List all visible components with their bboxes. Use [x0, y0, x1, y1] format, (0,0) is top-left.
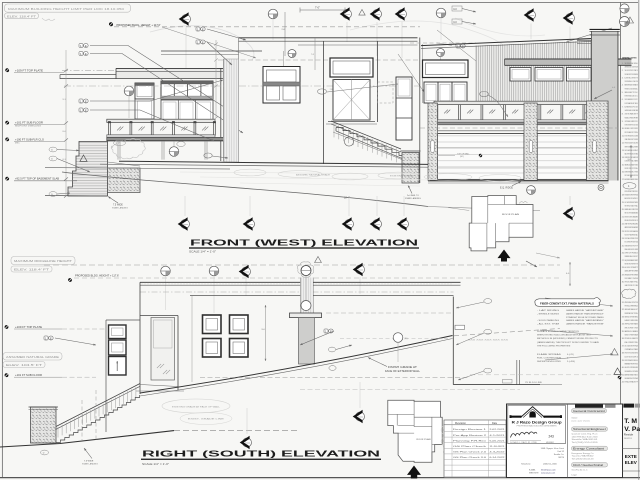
- svg-text:THE JOB SITE PRIOR TO START OF: THE JOB SITE PRIOR TO START OF: [625, 69, 639, 72]
- svg-text:STAIR RISE 7-3/4 IN MAX RUN: STAIR RISE 7-3/4 IN MAX RUN: [625, 156, 639, 159]
- svg-text:E.Q. RIDGE: E.Q. RIDGE: [500, 187, 513, 190]
- svg-text:Tacoma WA 98402: Tacoma WA 98402: [572, 455, 594, 458]
- svg-text:JAMES HARDIE "HARDIEPANEL": JAMES HARDIE "HARDIEPANEL": [566, 319, 604, 322]
- svg-text:ALL HEADERS 4x8 DF NO 2 UNO: ALL HEADERS 4x8 DF NO 2 UNO: [625, 105, 638, 108]
- svg-text:REQUIRE SEPARATE PERMIT: REQUIRE SEPARATE PERMIT: [625, 259, 639, 262]
- svg-text:WORK AND REPORT DISCREPANCIES: WORK AND REPORT DISCREPANCIES: [625, 73, 639, 76]
- svg-text:(96'): (96'): [460, 156, 464, 158]
- svg-text:HANDRAIL 34-38 IN ABV NOSING: HANDRAIL 34-38 IN ABV NOSING: [625, 163, 638, 166]
- svg-text:DECK GUARDRAIL 36 IN MIN HT: DECK GUARDRAIL 36 IN MIN HT: [625, 149, 639, 152]
- svg-text:SCALE 1/4" = 1'-0": SCALE 1/4" = 1'-0": [189, 249, 216, 253]
- svg-text:Civil / Geotechnical: Civil / Geotechnical: [573, 464, 604, 467]
- svg-text:Legal: Legal: [572, 474, 577, 476]
- svg-text:ALL SOILS CRITERIA TYP: ALL SOILS CRITERIA TYP: [625, 266, 639, 269]
- svg-text:STAIR LANDING: STAIR LANDING: [82, 463, 98, 466]
- svg-text:SCALE 1/4" = 1'-0": SCALE 1/4" = 1'-0": [142, 462, 169, 466]
- svg-text:GeoPacific LLC: GeoPacific LLC: [572, 469, 589, 471]
- svg-text:RETAINING WALLS OVER 4 FT: RETAINING WALLS OVER 4 FT: [625, 255, 639, 258]
- svg-text:PROVIDE SOLID BLOCKING AT ALL: PROVIDE SOLID BLOCKING AT ALL: [625, 87, 638, 90]
- svg-text:ROOF SHEATHING 1/2 CDX PLY: ROOF SHEATHING 1/2 CDX PLY: [625, 98, 639, 101]
- svg-text:STRAIGHT EDGE NOTCHED PANEL: STRAIGHT EDGE NOTCHED PANEL: [566, 316, 605, 319]
- svg-text:Telephone: Telephone: [521, 464, 531, 466]
- svg-text:VERIFY ALL FINISH GRADES: VERIFY ALL FINISH GRADES: [625, 323, 639, 326]
- svg-text:Unit 32: Unit 32: [557, 450, 564, 453]
- svg-text:FOR ALL SETBACKS TYP: FOR ALL SETBACKS TYP: [625, 381, 639, 384]
- svg-text:(206) 8-1-0400: (206) 8-1-0400: [543, 464, 558, 466]
- svg-text:Pre-App Review 2: Pre-App Review 2: [453, 434, 487, 437]
- svg-text:WEEP SCREED AT ALL VENEER: WEEP SCREED AT ALL VENEER: [625, 145, 639, 148]
- svg-text:Revision: Revision: [455, 422, 467, 425]
- svg-text:SEE STRUCTURAL FOR ALL: SEE STRUCTURAL FOR ALL: [625, 204, 638, 207]
- svg-text:ALL EXT DECKS SLOPE 1/4: ALL EXT DECKS SLOPE 1/4: [625, 355, 638, 358]
- svg-text:+109 FT TOP PLATE: +109 FT TOP PLATE: [15, 70, 44, 73]
- svg-text:DIMENSIONS AND CONDITIONS AT: DIMENSIONS AND CONDITIONS AT: [625, 66, 639, 69]
- svg-text:KICKOUT FLASHING AT ALL: KICKOUT FLASHING AT ALL: [625, 233, 638, 236]
- svg-text:WATER RESISTIVE BARRIER: WATER RESISTIVE BARRIER: [625, 226, 639, 229]
- svg-text:SMOKE AND CO DETECTORS PER: SMOKE AND CO DETECTORS PER: [625, 127, 639, 130]
- svg-text:NET CLEAR OPENING PER R310: NET CLEAR OPENING PER R310: [625, 174, 638, 177]
- svg-text:EXTE: EXTE: [625, 454, 637, 459]
- svg-text:7'-0": 7'-0": [315, 6, 320, 9]
- svg-text:PROFESSIONAL BUILDING DESIGN: PROFESSIONAL BUILDING DESIGNERS: [517, 425, 558, 428]
- svg-text:- ALL EXT. TRIM: - ALL EXT. TRIM: [537, 323, 559, 326]
- svg-text:E: E: [202, 27, 204, 31]
- svg-text:ROOF PLAN: ROOF PLAN: [502, 213, 520, 216]
- svg-text:FLAME SPREAD: FLAME SPREAD: [537, 353, 562, 356]
- svg-text:+101 FT SUB FLOOR: +101 FT SUB FLOOR: [15, 375, 42, 377]
- svg-text:CRAWL SPACE VENT 1/150 MIN: CRAWL SPACE VENT 1/150 MIN: [625, 138, 639, 141]
- svg-text:ROOF DRAINS TO TIGHTLINE: ROOF DRAINS TO TIGHTLINE: [625, 277, 639, 280]
- svg-text:(JAMES HARDIE). THE PRODUCT IS: (JAMES HARDIE). THE PRODUCT IS RECOGNIZE…: [537, 341, 600, 344]
- svg-text:E: E: [85, 52, 87, 56]
- svg-text:ELEV: ELEV: [625, 460, 638, 465]
- svg-text:PANEL EDGES TYP U.N.O.: PANEL EDGES TYP U.N.O.: [625, 91, 638, 94]
- svg-text:RIGHT (SOUTH) ELEVATION: RIGHT (SOUTH) ELEVATION: [142, 450, 380, 459]
- svg-text:EXISTING GRADE AT FACE OF WALL: EXISTING GRADE AT FACE OF WALL: [172, 405, 221, 408]
- svg-text:FIBER-CEMENT EXT. FINISH MATER: FIBER-CEMENT EXT. FINISH MATERIALS: [540, 301, 594, 305]
- svg-text:IN PER FT AWAY FROM BLDG: IN PER FT AWAY FROM BLDG: [625, 359, 639, 362]
- svg-text:- SHINGLE SIDING: - SHINGLE SIDING: [537, 313, 559, 315]
- svg-text:E: E: [462, 44, 464, 48]
- svg-text:MIDPOINT DWELLING: MIDPOINT DWELLING: [15, 126, 41, 128]
- svg-text:GS Plan Check: GS Plan Check: [453, 446, 488, 448]
- svg-text:TOP OF WALL: TOP OF WALL: [457, 153, 470, 156]
- svg-text:1420 Fifth Ave Suite 2200: 1420 Fifth Ave Suite 2200: [572, 435, 598, 438]
- svg-text:WITH CIVIL PRIOR TO POUR: WITH CIVIL PRIOR TO POUR: [625, 327, 639, 329]
- svg-text:7.5 WIDE: 7.5 WIDE: [113, 205, 123, 207]
- svg-text:2X BLDG LINE: 2X BLDG LINE: [525, 382, 543, 384]
- svg-text:SILL PLATES PRESSURE TREATED: SILL PLATES PRESSURE TREATED: [625, 201, 639, 204]
- svg-text:Date: Date: [492, 422, 498, 425]
- svg-text:Design Review 1: Design Review 1: [453, 429, 488, 431]
- svg-text:GS Plan Check 2.0: GS Plan Check 2.0: [453, 452, 487, 454]
- svg-text:ADDRESS NUMBERS VISIBLE: ADDRESS NUMBERS VISIBLE: [625, 178, 639, 181]
- svg-text:GUTTERS AND DOWNSPOUTS TO: GUTTERS AND DOWNSPOUTS TO: [625, 120, 638, 123]
- svg-text:98274: 98274: [558, 457, 565, 459]
- svg-text:PER CIVIL PLANS TYPICAL: PER CIVIL PLANS TYPICAL: [625, 281, 638, 284]
- svg-text:PROPOSED BLDG. HEIGHT + 117.6': PROPOSED BLDG. HEIGHT + 117.6': [75, 275, 120, 278]
- svg-text:FUEL CONTRIBUTION: FUEL CONTRIBUTION: [537, 358, 562, 360]
- svg-text:ROOF WALL INTERSECTIONS: ROOF WALL INTERSECTIONS: [625, 237, 639, 240]
- svg-text:EXT LIGHTING PER ELEC PLAN: EXT LIGHTING PER ELEC PLAN: [625, 241, 639, 244]
- svg-text:0 (<25): 0 (<25): [567, 353, 574, 356]
- svg-text:+100 FT SUB-FLR CLG: +100 FT SUB-FLR CLG: [15, 139, 44, 141]
- svg-text:Evergreen Energy Co: Evergreen Energy Co: [572, 453, 594, 455]
- svg-text:Structural Engineer: Structural Engineer: [573, 428, 606, 431]
- svg-text:Info@rjrazo.com: Info@rjrazo.com: [541, 470, 556, 472]
- svg-text:ASSUMED NATURAL GRADE: ASSUMED NATURAL GRADE: [6, 356, 60, 359]
- svg-text:JAMES HARDIE "HARDIETRIM": JAMES HARDIE "HARDIETRIM": [566, 323, 604, 326]
- svg-text:JAMES HARDIE "HARDIEPLANK": JAMES HARDIE "HARDIEPLANK": [566, 309, 604, 312]
- svg-text:ATTIC VENTILATION 1/150 MIN: ATTIC VENTILATION 1/150 MIN: [625, 134, 639, 137]
- svg-text:XXX XXX XXX XXX XXX: XXX XXX XXX XXX XXX: [468, 340, 509, 342]
- svg-text:GUARD POSTS AT 4 FT OC MAX: GUARD POSTS AT 4 FT OC MAX: [625, 284, 639, 287]
- svg-text:MAXIMUM BUILDING HEIGHT LIMIT: MAXIMUM BUILDING HEIGHT LIMIT PER LMC 18…: [8, 8, 125, 11]
- svg-text:PAINT ALL EXPOSED METAL: PAINT ALL EXPOSED METAL: [625, 315, 638, 318]
- svg-text:AMENDMENTS AND ORDINANCES: AMENDMENTS AND ORDINANCES: [625, 84, 639, 87]
- svg-text:WHEN TESTED IN ACCORDANCE WITH: WHEN TESTED IN ACCORDANCE WITH ASTM TEST: [537, 334, 592, 337]
- svg-text:(see cover sheet): (see cover sheet): [572, 419, 591, 422]
- svg-text:E: E: [85, 44, 87, 48]
- svg-text:Tel (253) 555-0123: Tel (253) 555-0123: [572, 458, 594, 460]
- svg-text:THE CONTRACTOR SHALL VERIFY AL: THE CONTRACTOR SHALL VERIFY ALL: [625, 62, 638, 65]
- svg-text:FLOOR SHEATHING 3/4 T AND G: FLOOR SHEATHING 3/4 T AND G: [625, 102, 638, 105]
- svg-text:E: E: [85, 108, 87, 112]
- svg-text:PROVIDE 22x30 ATTIC ACCESS: PROVIDE 22x30 ATTIC ACCESS: [625, 142, 639, 145]
- svg-text:SEE GEOTECH REPORT FOR: SEE GEOTECH REPORT FOR: [625, 263, 639, 265]
- svg-text:243: 243: [549, 435, 555, 439]
- svg-text:PRIOR TO ROUGH-IN WORK: PRIOR TO ROUGH-IN WORK: [625, 353, 639, 355]
- svg-text:7.5 WIDE: 7.5 WIDE: [84, 460, 94, 462]
- svg-text:SEE SHEET A-2 SITE PLAN: SEE SHEET A-2 SITE PLAN: [625, 377, 639, 380]
- svg-text:DS LOCATIONS PER PLAN: DS LOCATIONS PER PLAN: [625, 344, 639, 347]
- svg-text:GLAZING SHALL BE DUAL PANE: GLAZING SHALL BE DUAL PANE: [625, 109, 639, 112]
- svg-text:PROVIDE GG CLEANOUTS: PROVIDE GG CLEANOUTS: [625, 337, 639, 340]
- svg-text:6-14-2022: 6-14-2022: [490, 457, 506, 459]
- svg-text:STORM SYSTEM PER CIVIL DWGS: STORM SYSTEM PER CIVIL DWGS: [625, 125, 639, 127]
- svg-text:Planning P.R.Rev: Planning P.R.Rev: [453, 440, 488, 442]
- svg-text:FLASHING TO MATCH SIDING: FLASHING TO MATCH SIDING: [625, 319, 639, 322]
- svg-text:Quantum Const. Eng. PLLC: Quantum Const. Eng. PLLC: [572, 433, 599, 436]
- svg-text:BALUSTER SPACING 4 IN MAX: BALUSTER SPACING 4 IN MAX: [625, 153, 639, 156]
- svg-text:PROPOSED BLDG. HEIGHT + 117.6': PROPOSED BLDG. HEIGHT + 117.6': [117, 23, 162, 27]
- svg-text:SEE CIVIL FOR DRAINAGE AND: SEE CIVIL FOR DRAINAGE AND: [625, 212, 639, 215]
- svg-text:14022 8: 14022 8: [624, 438, 633, 440]
- svg-text:E: E: [202, 40, 204, 44]
- svg-text:PER IRC R311.7.8 TYPICAL: PER IRC R311.7.8 TYPICAL: [625, 167, 638, 170]
- svg-text:MAINTAIN 6 IN CLEARANCE: MAINTAIN 6 IN CLEARANCE: [625, 330, 639, 333]
- svg-text:JAMES HARDIE "HARDIESHINGLE": JAMES HARDIE "HARDIESHINGLE": [566, 312, 604, 315]
- svg-text:DONALD L. RAZO JR. CPBD: DONALD L. RAZO JR. CPBD: [510, 441, 538, 444]
- svg-text:+101 FT SUB FLOOR: +101 FT SUB FLOOR: [15, 122, 43, 124]
- svg-text:2018 IRC AND ALL LOCAL CODE: 2018 IRC AND ALL LOCAL CODE: [625, 80, 639, 83]
- svg-text:FOUNDATION VENTS PER PLAN: FOUNDATION VENTS PER PLAN: [625, 194, 639, 197]
- svg-text:CAULK AND SEAL ALL EXT: CAULK AND SEAL ALL EXT: [625, 308, 639, 311]
- svg-text:MEMBER: MEMBER: [546, 442, 555, 444]
- svg-text:AT ALL CORNERS TYPICAL: AT ALL CORNERS TYPICAL: [625, 341, 638, 344]
- svg-text:SMOKE DEVELOPED: SMOKE DEVELOPED: [537, 361, 562, 363]
- svg-text:FIRE BLOCKING PER R302.11: FIRE BLOCKING PER R302.11: [625, 220, 638, 222]
- svg-text:SIDING TO FINISH GRADE: SIDING TO FINISH GRADE: [625, 334, 639, 337]
- svg-text:GS Plan Check 3.0: GS Plan Check 3.0: [453, 457, 487, 459]
- svg-text:ELEV. 118.4' FT: ELEV. 118.4' FT: [14, 270, 50, 272]
- svg-text:EXISTING GRADE: EXISTING GRADE: [390, 174, 415, 177]
- svg-text:Reside: Reside: [624, 433, 634, 437]
- svg-text:COORDINATE ALL TRADES: COORDINATE ALL TRADES: [625, 348, 639, 351]
- svg-text:SEE SHEET A-1 FOR MORE: SEE SHEET A-1 FOR MORE: [625, 370, 639, 373]
- svg-text:E-MAIL: E-MAIL: [529, 469, 537, 472]
- svg-text:T. M: T. M: [624, 418, 637, 425]
- svg-text:THE FOLLOWING PROPERTIES:: THE FOLLOWING PROPERTIES:: [537, 345, 571, 347]
- svg-text:IRC R314 AND R315 TYPICAL: IRC R314 AND R315 TYPICAL: [625, 131, 638, 134]
- svg-text:2x4 RAIL TO: 2x4 RAIL TO: [407, 194, 419, 197]
- svg-text:Seattle WA 98101: Seattle WA 98101: [572, 438, 598, 441]
- svg-text:WINDOW FALL PROTECTION: WINDOW FALL PROTECTION: [625, 301, 639, 304]
- svg-text:PER R703.2 OVER SHEATHING: PER R703.2 OVER SHEATHING: [625, 230, 638, 233]
- svg-text:STAIR LANDING: STAIR LANDING: [112, 207, 128, 210]
- svg-text:IRRIGATION PER OWNER: IRRIGATION PER OWNER: [625, 273, 639, 276]
- svg-text:+92.5 FT TOP OF BASEMENT SLAB: +92.5 FT TOP OF BASEMENT SLAB: [15, 178, 60, 181]
- svg-text:PER R312.2 WHERE REQD: PER R312.2 WHERE REQD: [625, 306, 639, 308]
- svg-text:E: E: [50, 336, 52, 340]
- svg-text:FROM STREET PER R319.1: FROM STREET PER R319.1: [625, 191, 638, 193]
- svg-text:2-02-2021: 2-02-2021: [490, 429, 506, 431]
- svg-text:Tel (206) 555-0199: Tel (206) 555-0199: [572, 442, 598, 444]
- svg-text:ABBREVIATIONS AND SYMBOLS: ABBREVIATIONS AND SYMBOLS: [625, 373, 639, 376]
- svg-text:FRONT (WEST) ELEVATION: FRONT (WEST) ELEVATION: [190, 239, 418, 248]
- svg-text:FRAMING AND CONNECTIONS: FRAMING AND CONNECTIONS: [625, 208, 639, 211]
- svg-text:(E): (E): [405, 338, 408, 340]
- svg-text:5-06-2021: 5-06-2021: [490, 440, 506, 442]
- svg-text:FLASH ALL OPENINGS PER MFR: FLASH ALL OPENINGS PER MFR: [625, 116, 639, 119]
- svg-text:MSC: MSC: [15, 142, 20, 144]
- svg-text:DRAFT STOPS AS REQUIRED: DRAFT STOPS AS REQUIRED: [625, 223, 639, 226]
- svg-text:HOSE BIBS FROST PROOF TYP: HOSE BIBS FROST PROOF TYP: [625, 245, 639, 247]
- svg-text:General Contractor: General Contractor: [573, 410, 605, 413]
- svg-text:11-16-2021: 11-16-2021: [490, 446, 506, 448]
- svg-text:10 IN MIN TYP ALL STAIRS: 10 IN MIN TYP ALL STAIRS: [625, 160, 639, 163]
- svg-text:4-3-2022: 4-3-2022: [490, 452, 506, 454]
- svg-text:R J Razo Design Group: R J Razo Design Group: [512, 419, 563, 424]
- svg-text:PENETRATIONS TYPICAL: PENETRATIONS TYPICAL: [625, 312, 638, 315]
- svg-text:Seattle Co.: Seattle Co.: [554, 453, 565, 456]
- svg-text:Energy Consultant: Energy Consultant: [573, 448, 605, 451]
- svg-text:LANDSCAPE PER OWNER: LANDSCAPE PER OWNER: [625, 270, 639, 273]
- svg-text:4-1-2021: 4-1-2021: [490, 435, 506, 437]
- svg-text:IN FIRST 10 FT FROM BLDG: IN FIRST 10 FT FROM BLDG: [625, 253, 639, 255]
- svg-text:ELEV. 118.4' FT: ELEV. 118.4' FT: [7, 15, 37, 18]
- svg-text:E: E: [85, 99, 87, 103]
- svg-text:Owner: Owner: [572, 417, 578, 419]
- svg-text:LOW-E VINYL FRAMED UNITS TYP: LOW-E VINYL FRAMED UNITS TYP: [625, 113, 639, 116]
- svg-text:ROOF PLAN: ROOF PLAN: [417, 438, 432, 441]
- svg-text:ALL WORK SHALL CONFORM TO THE: ALL WORK SHALL CONFORM TO THE: [625, 76, 639, 79]
- svg-text:ELEV. 104.5' FT: ELEV. 104.5' FT: [6, 365, 43, 367]
- svg-text:FINAL GRADE SLOPE 6 IN MIN: FINAL GRADE SLOPE 6 IN MIN: [625, 248, 639, 251]
- svg-text:- LAP SIDING: - LAP SIDING: [537, 309, 560, 312]
- svg-text:5 (<450): 5 (<450): [567, 360, 575, 363]
- svg-text:- SOLID PANELING: - SOLID PANELING: [537, 319, 559, 322]
- svg-text:SURFACE BURNING CHARACTERISTIC: SURFACE BURNING CHARACTERISTICS: [537, 330, 579, 333]
- svg-text:EROSION CONTROL MEASURES: EROSION CONTROL MEASURES: [625, 215, 639, 218]
- svg-text:www.rjrazo.com: www.rjrazo.com: [541, 473, 555, 475]
- svg-text:+109 FT TOP PLATE: +109 FT TOP PLATE: [15, 326, 43, 329]
- svg-text:MAXIMUM RIDGELINE HEIGHT: MAXIMUM RIDGELINE HEIGHT: [14, 260, 73, 263]
- svg-text:WEB SITE: WEB SITE: [529, 473, 539, 475]
- svg-text:ASSUMED NATURAL GRADE: ASSUMED NATURAL GRADE: [296, 173, 331, 176]
- svg-text:FINISH GRADE AT: FINISH GRADE AT: [388, 366, 418, 369]
- svg-text:EGRESS WINDOWS 5.7 SF MIN: EGRESS WINDOWS 5.7 SF MIN: [625, 172, 639, 174]
- svg-text:EXTERIOR WALLS 2x6 AT 16 O.C.: EXTERIOR WALLS 2x6 AT 16 O.C.: [625, 95, 638, 98]
- svg-text:HHH NOTE CONTINUES HERE: HHH NOTE CONTINUES HERE: [625, 367, 639, 369]
- svg-text:METHOD E 84 (MODIFIED) CEMENT: METHOD E 84 (MODIFIED) CEMENT SIDING PRO…: [537, 338, 598, 340]
- svg-text:1408 Olympic View Court: 1408 Olympic View Court: [541, 447, 565, 450]
- svg-text:ANCHOR BOLTS 5/8 AT 48 OC: ANCHOR BOLTS 5/8 AT 48 OC: [625, 197, 639, 200]
- svg-text:GENERAL NOTES: GENERAL NOTES: [622, 57, 637, 60]
- svg-text:FACE OF EXTERIOR WALL: FACE OF EXTERIOR WALL: [385, 370, 421, 373]
- svg-text:MEMBRANE PER MFR SPECS: MEMBRANE PER MFR SPECS: [625, 363, 639, 366]
- svg-text:STAIR LANDING: STAIR LANDING: [405, 197, 421, 200]
- svg-text:EXIST. GRADE LINE: EXIST. GRADE LINE: [188, 418, 225, 421]
